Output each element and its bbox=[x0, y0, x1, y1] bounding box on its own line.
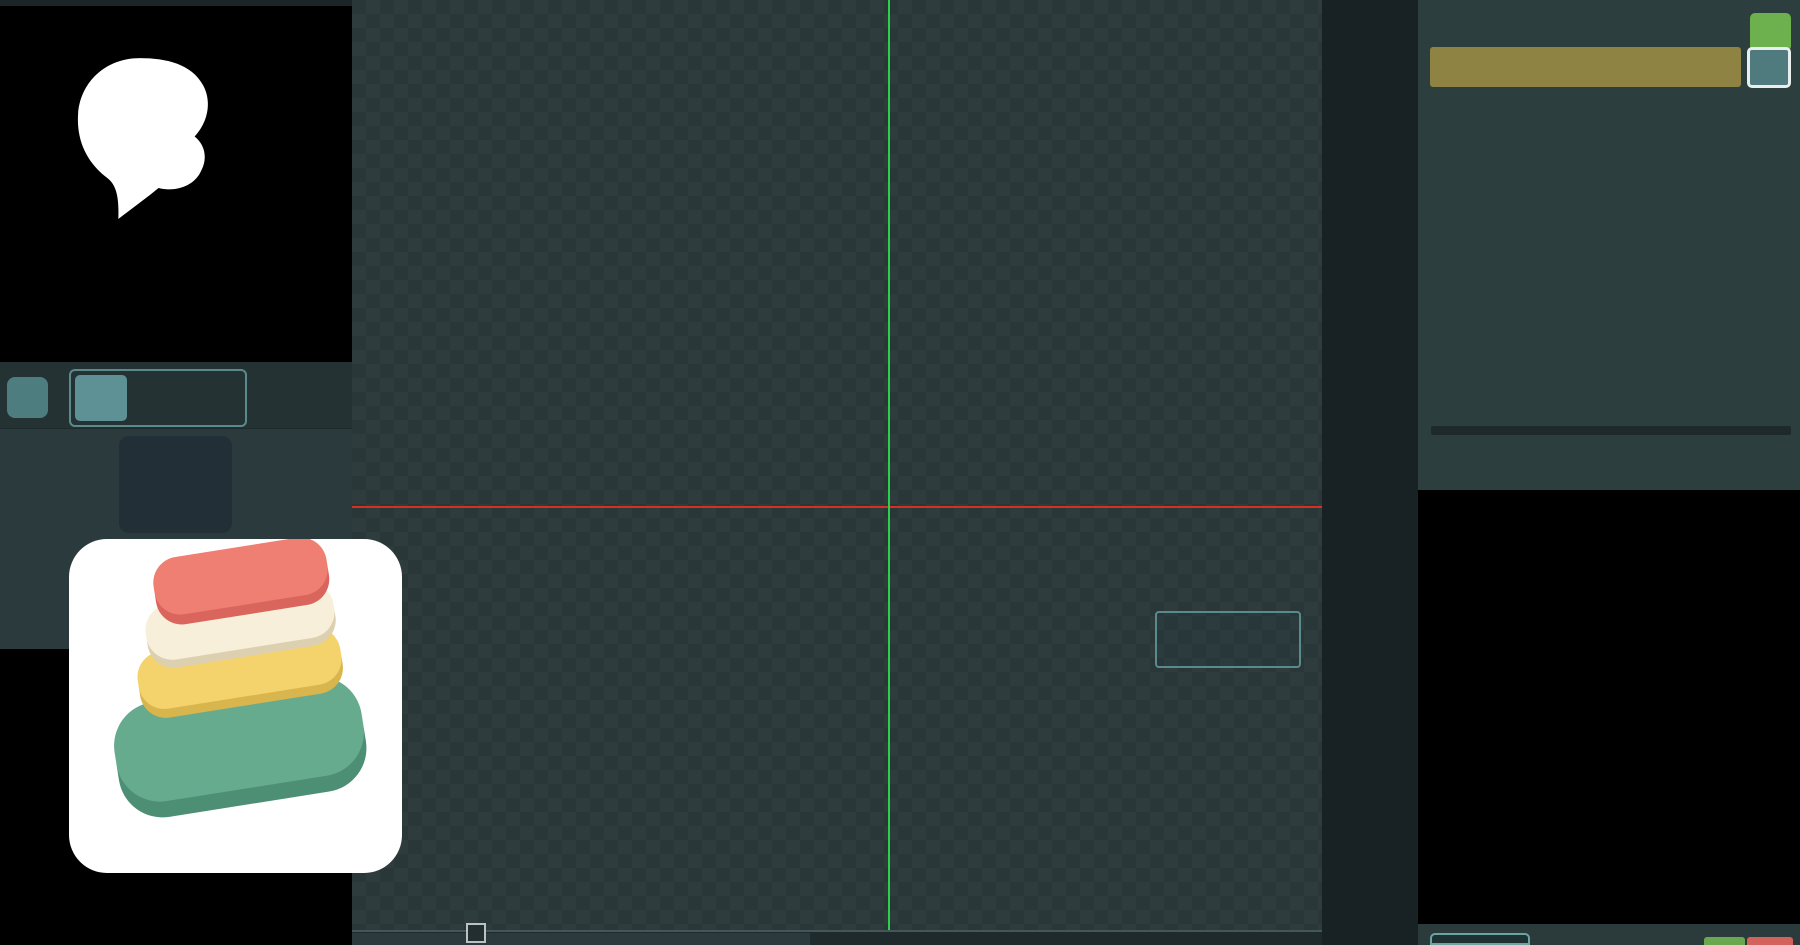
preview-settings-button[interactable] bbox=[1430, 933, 1530, 945]
mirror-x-button[interactable] bbox=[133, 378, 177, 418]
canvas-scrollbar-thumb[interactable] bbox=[352, 933, 810, 945]
palette-swatches-button[interactable] bbox=[7, 377, 48, 418]
canvas-viewport[interactable] bbox=[352, 0, 1322, 945]
mirror-none-button[interactable] bbox=[75, 375, 127, 421]
object-visibility-button[interactable] bbox=[1747, 47, 1791, 88]
canvas-corner-handle[interactable] bbox=[466, 923, 486, 943]
toggle-all-visibility-button[interactable] bbox=[1750, 13, 1791, 51]
mirror-xy-button[interactable] bbox=[188, 376, 238, 420]
render-mode-group bbox=[1155, 611, 1301, 668]
cancel-button[interactable] bbox=[1747, 937, 1793, 945]
axis-line-y bbox=[888, 0, 890, 945]
cursor-blob-graphic bbox=[66, 56, 216, 221]
layer-slice-strip bbox=[1322, 0, 1418, 945]
sprite-stack-app bbox=[0, 0, 1800, 945]
sprite-stack-logo-card bbox=[69, 539, 402, 873]
selected-tool-highlight bbox=[119, 436, 232, 533]
axis-line-x bbox=[352, 506, 1322, 508]
pixel-map-canvas[interactable] bbox=[352, 0, 1322, 945]
confirm-button[interactable] bbox=[1704, 937, 1745, 945]
objects-panel-divider bbox=[1431, 426, 1791, 435]
model-3d-preview[interactable] bbox=[1418, 490, 1800, 924]
object-list-item-main[interactable] bbox=[1430, 47, 1741, 87]
